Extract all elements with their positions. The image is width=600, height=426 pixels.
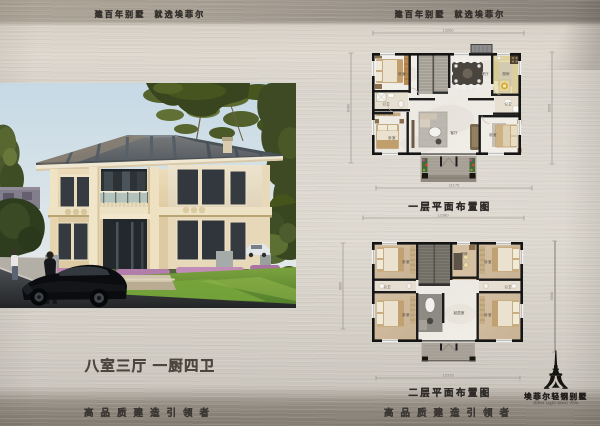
svg-text:公卫: 公卫 bbox=[504, 101, 512, 106]
svg-text:卧室: 卧室 bbox=[489, 132, 497, 137]
svg-text:卧室: 卧室 bbox=[484, 312, 492, 317]
svg-text:6660: 6660 bbox=[339, 282, 343, 290]
svg-text:客厅: 客厅 bbox=[450, 130, 458, 135]
svg-text:13260: 13260 bbox=[442, 28, 454, 33]
svg-text:12375: 12375 bbox=[442, 373, 454, 378]
svg-text:卧室: 卧室 bbox=[402, 259, 410, 264]
svg-text:餐厅: 餐厅 bbox=[481, 71, 489, 76]
svg-text:9060: 9060 bbox=[548, 104, 552, 112]
svg-text:公卫: 公卫 bbox=[382, 101, 390, 106]
svg-text:卧室: 卧室 bbox=[398, 71, 406, 76]
svg-text:卧室: 卧室 bbox=[484, 259, 492, 264]
svg-text:公卫: 公卫 bbox=[383, 284, 391, 289]
svg-text:公卫: 公卫 bbox=[504, 284, 512, 289]
svg-text:卧室: 卧室 bbox=[402, 312, 410, 317]
svg-text:12380: 12380 bbox=[437, 213, 449, 218]
svg-text:卧室: 卧室 bbox=[388, 135, 396, 140]
svg-text:书房: 书房 bbox=[460, 251, 468, 256]
svg-text:8460: 8460 bbox=[347, 104, 351, 112]
svg-text:厨房: 厨房 bbox=[502, 71, 510, 76]
svg-text:起居室: 起居室 bbox=[454, 310, 465, 315]
svg-text:11175: 11175 bbox=[449, 183, 460, 188]
svg-text:9060: 9060 bbox=[550, 292, 554, 300]
